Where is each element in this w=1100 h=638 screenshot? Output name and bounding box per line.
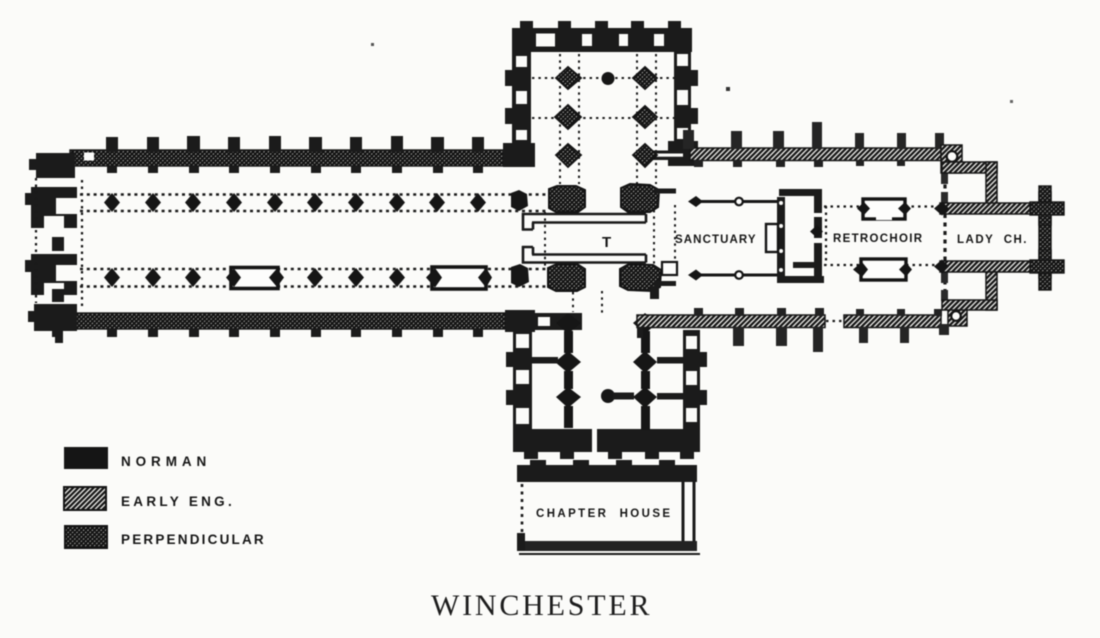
svg-text:LADY CH.: LADY CH.: [957, 234, 1028, 246]
svg-text:T: T: [602, 234, 611, 251]
svg-text:RETROCHOIR: RETROCHOIR: [833, 233, 923, 245]
svg-text:CHAPTER HOUSE: CHAPTER HOUSE: [536, 508, 672, 520]
svg-text:SANCTUARY: SANCTUARY: [675, 234, 757, 246]
svg-text:NORMAN: NORMAN: [121, 454, 211, 469]
svg-text:PERPENDICULAR: PERPENDICULAR: [121, 532, 266, 547]
svg-text:EARLY ENG.: EARLY ENG.: [121, 494, 235, 509]
svg-text:WINCHESTER: WINCHESTER: [431, 589, 652, 622]
